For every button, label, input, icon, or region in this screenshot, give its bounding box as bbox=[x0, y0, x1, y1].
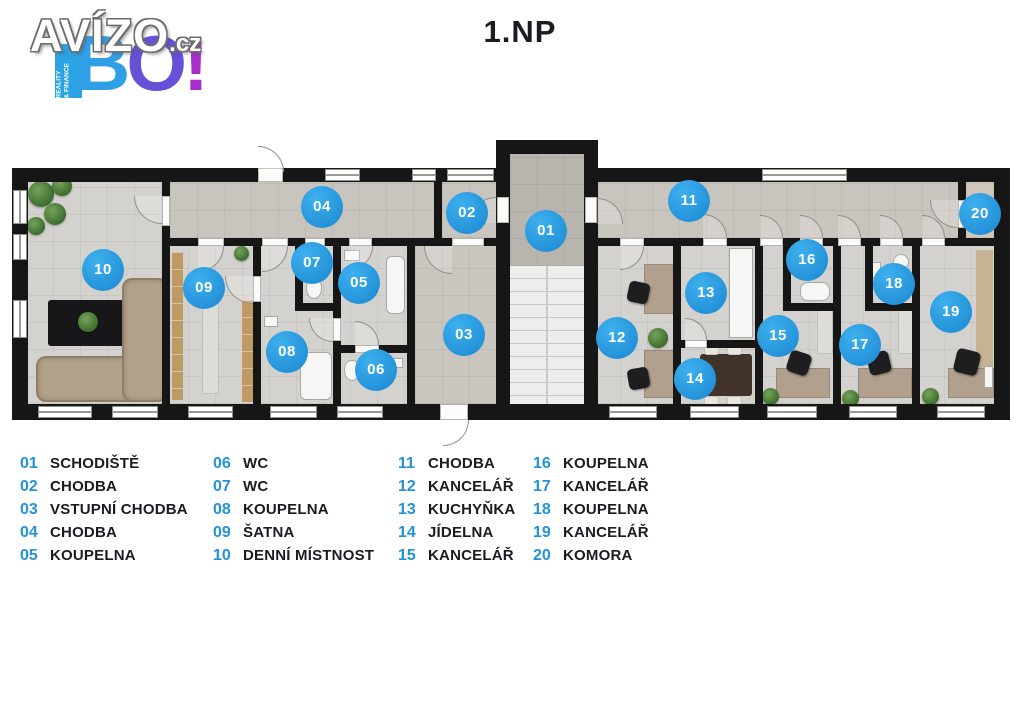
legend-column-3: 11CHODBA12KANCELÁŘ13KUCHYŇKA14JÍDELNA15K… bbox=[398, 455, 515, 570]
door-opening bbox=[838, 238, 861, 246]
legend-item-13: 13KUCHYŇKA bbox=[398, 501, 515, 524]
legend-label: KOUPELNA bbox=[563, 501, 649, 518]
door-opening bbox=[620, 238, 644, 246]
window bbox=[13, 300, 27, 338]
window bbox=[412, 169, 436, 181]
legend-number: 12 bbox=[398, 478, 428, 496]
door-opening bbox=[760, 238, 783, 246]
legend-column-2: 06WC07WC08KOUPELNA09ŠATNA10DENNÍ MÍSTNOS… bbox=[213, 455, 374, 570]
room-marker-13: 13 bbox=[685, 272, 727, 314]
legend-number: 15 bbox=[398, 547, 428, 565]
legend-label: KANCELÁŘ bbox=[563, 478, 649, 495]
room-marker-09: 09 bbox=[183, 267, 225, 309]
legend-number: 13 bbox=[398, 501, 428, 519]
table-plant bbox=[78, 312, 98, 332]
window bbox=[13, 234, 27, 260]
legend-item-03: 03VSTUPNÍ CHODBA bbox=[20, 501, 188, 524]
window bbox=[325, 169, 360, 181]
plant bbox=[648, 328, 668, 348]
window bbox=[447, 169, 494, 181]
legend-number: 09 bbox=[213, 524, 243, 542]
wardrobe bbox=[242, 300, 253, 402]
legend-label: KOMORA bbox=[563, 547, 633, 564]
legend-item-16: 16KOUPELNA bbox=[533, 455, 649, 478]
desk bbox=[644, 350, 676, 398]
door-opening bbox=[333, 318, 341, 341]
room-marker-07: 07 bbox=[291, 242, 333, 284]
kitchen-counter bbox=[729, 248, 753, 338]
legend-number: 08 bbox=[213, 501, 243, 519]
office-chair bbox=[626, 280, 651, 305]
window bbox=[112, 406, 158, 418]
legend-item-09: 09ŠATNA bbox=[213, 524, 374, 547]
door-opening bbox=[585, 197, 597, 223]
legend-number: 16 bbox=[533, 455, 563, 473]
stairs-divider bbox=[546, 266, 548, 404]
door-opening bbox=[349, 238, 372, 246]
legend-label: KOUPELNA bbox=[563, 455, 649, 472]
wall bbox=[496, 140, 510, 404]
legend-label: CHODBA bbox=[50, 478, 117, 495]
window bbox=[690, 406, 739, 418]
shower bbox=[800, 282, 830, 301]
room-marker-04: 04 bbox=[301, 186, 343, 228]
legend-item-02: 02CHODBA bbox=[20, 478, 188, 501]
plant bbox=[234, 246, 249, 261]
door-opening bbox=[703, 238, 727, 246]
window bbox=[13, 190, 27, 224]
door-opening bbox=[198, 238, 224, 246]
legend-item-04: 04CHODBA bbox=[20, 524, 188, 547]
room-marker-17: 17 bbox=[839, 324, 881, 366]
legend-label: KOUPELNA bbox=[243, 501, 329, 518]
room-marker-16: 16 bbox=[786, 239, 828, 281]
logo-avizo-wordmark: AVÍZO.cz bbox=[30, 10, 201, 62]
logo-brand-text: AVÍZO bbox=[30, 10, 169, 61]
legend-number: 17 bbox=[533, 478, 563, 496]
wall bbox=[434, 182, 442, 246]
legend: 01SCHODIŠTĚ02CHODBA03VSTUPNÍ CHODBA04CHO… bbox=[20, 455, 800, 580]
legend-item-14: 14JÍDELNA bbox=[398, 524, 515, 547]
cabinet bbox=[817, 310, 833, 354]
room-marker-18: 18 bbox=[873, 263, 915, 305]
office-chair bbox=[626, 366, 650, 390]
door-opening bbox=[880, 238, 903, 246]
legend-label: WC bbox=[243, 455, 268, 472]
room-marker-06: 06 bbox=[355, 349, 397, 391]
room-marker-19: 19 bbox=[930, 291, 972, 333]
plant bbox=[44, 203, 66, 225]
legend-label: VSTUPNÍ CHODBA bbox=[50, 501, 188, 518]
legend-number: 18 bbox=[533, 501, 563, 519]
legend-item-15: 15KANCELÁŘ bbox=[398, 547, 515, 570]
sink bbox=[264, 316, 278, 327]
window bbox=[767, 406, 817, 418]
bathtub bbox=[386, 256, 405, 314]
legend-number: 02 bbox=[20, 478, 50, 496]
room-marker-05: 05 bbox=[338, 262, 380, 304]
wall bbox=[783, 303, 841, 311]
legend-number: 19 bbox=[533, 524, 563, 542]
door-opening bbox=[253, 276, 261, 302]
legend-item-19: 19KANCELÁŘ bbox=[533, 524, 649, 547]
room-marker-08: 08 bbox=[266, 331, 308, 373]
legend-number: 01 bbox=[20, 455, 50, 473]
window bbox=[762, 169, 847, 181]
legend-label: WC bbox=[243, 478, 268, 495]
legend-label: KOUPELNA bbox=[50, 547, 136, 564]
wall bbox=[912, 246, 920, 404]
legend-item-08: 08KOUPELNA bbox=[213, 501, 374, 524]
room-marker-12: 12 bbox=[596, 317, 638, 359]
door-swing bbox=[258, 146, 284, 172]
room-marker-01: 01 bbox=[525, 210, 567, 252]
legend-item-11: 11CHODBA bbox=[398, 455, 515, 478]
room-marker-15: 15 bbox=[757, 315, 799, 357]
room-marker-03: 03 bbox=[443, 314, 485, 356]
room-marker-02: 02 bbox=[446, 192, 488, 234]
legend-column-1: 01SCHODIŠTĚ02CHODBA03VSTUPNÍ CHODBA04CHO… bbox=[20, 455, 188, 570]
legend-number: 03 bbox=[20, 501, 50, 519]
door-swing bbox=[443, 420, 469, 446]
printer bbox=[984, 366, 993, 388]
wall bbox=[253, 246, 261, 404]
legend-number: 11 bbox=[398, 455, 428, 473]
legend-item-10: 10DENNÍ MÍSTNOST bbox=[213, 547, 374, 570]
legend-number: 06 bbox=[213, 455, 243, 473]
legend-item-18: 18KOUPELNA bbox=[533, 501, 649, 524]
legend-item-17: 17KANCELÁŘ bbox=[533, 478, 649, 501]
window bbox=[937, 406, 985, 418]
wall bbox=[865, 246, 873, 311]
room-marker-14: 14 bbox=[674, 358, 716, 400]
legend-item-12: 12KANCELÁŘ bbox=[398, 478, 515, 501]
door-opening bbox=[162, 196, 170, 226]
door-opening bbox=[452, 238, 484, 246]
legend-number: 04 bbox=[20, 524, 50, 542]
room-marker-10: 10 bbox=[82, 249, 124, 291]
legend-label: CHODBA bbox=[50, 524, 117, 541]
door-opening bbox=[497, 197, 509, 223]
page-title: 1.NP bbox=[424, 14, 616, 50]
legend-label: JÍDELNA bbox=[428, 524, 494, 541]
plant bbox=[922, 388, 939, 405]
legend-number: 14 bbox=[398, 524, 428, 542]
door-opening bbox=[262, 238, 288, 246]
wall bbox=[833, 246, 841, 404]
legend-column-4: 16KOUPELNA17KANCELÁŘ18KOUPELNA19KANCELÁŘ… bbox=[533, 455, 649, 570]
window bbox=[38, 406, 92, 418]
window bbox=[270, 406, 317, 418]
legend-item-06: 06WC bbox=[213, 455, 374, 478]
room-marker-11: 11 bbox=[668, 180, 710, 222]
legend-label: CHODBA bbox=[428, 455, 495, 472]
window bbox=[188, 406, 233, 418]
legend-label: SCHODIŠTĚ bbox=[50, 455, 139, 472]
plant bbox=[762, 388, 779, 405]
door-opening bbox=[685, 340, 707, 348]
legend-label: KANCELÁŘ bbox=[428, 547, 514, 564]
plant bbox=[27, 217, 45, 235]
floorplan-page: REALITY & FINANCE BO! AVÍZO.cz 1.NP bbox=[0, 0, 1024, 724]
legend-number: 07 bbox=[213, 478, 243, 496]
wall bbox=[584, 140, 598, 404]
legend-item-20: 20KOMORA bbox=[533, 547, 649, 570]
logo-domain-text: .cz bbox=[169, 30, 201, 57]
legend-label: KANCELÁŘ bbox=[563, 524, 649, 541]
legend-number: 10 bbox=[213, 547, 243, 565]
legend-label: KUCHYŇKA bbox=[428, 501, 515, 518]
door-opening bbox=[922, 238, 945, 246]
wall bbox=[407, 246, 415, 404]
legend-number: 05 bbox=[20, 547, 50, 565]
legend-label: DENNÍ MÍSTNOST bbox=[243, 547, 374, 564]
wardrobe bbox=[172, 252, 183, 400]
legend-label: ŠATNA bbox=[243, 524, 295, 541]
legend-item-05: 05KOUPELNA bbox=[20, 547, 188, 570]
legend-item-01: 01SCHODIŠTĚ bbox=[20, 455, 188, 478]
window bbox=[849, 406, 897, 418]
entry-door-opening bbox=[440, 404, 468, 420]
wall bbox=[496, 140, 598, 154]
legend-number: 20 bbox=[533, 547, 563, 565]
legend-item-07: 07WC bbox=[213, 478, 374, 501]
legend-label: KANCELÁŘ bbox=[428, 478, 514, 495]
window bbox=[609, 406, 657, 418]
room-marker-20: 20 bbox=[959, 193, 1001, 235]
window bbox=[337, 406, 383, 418]
